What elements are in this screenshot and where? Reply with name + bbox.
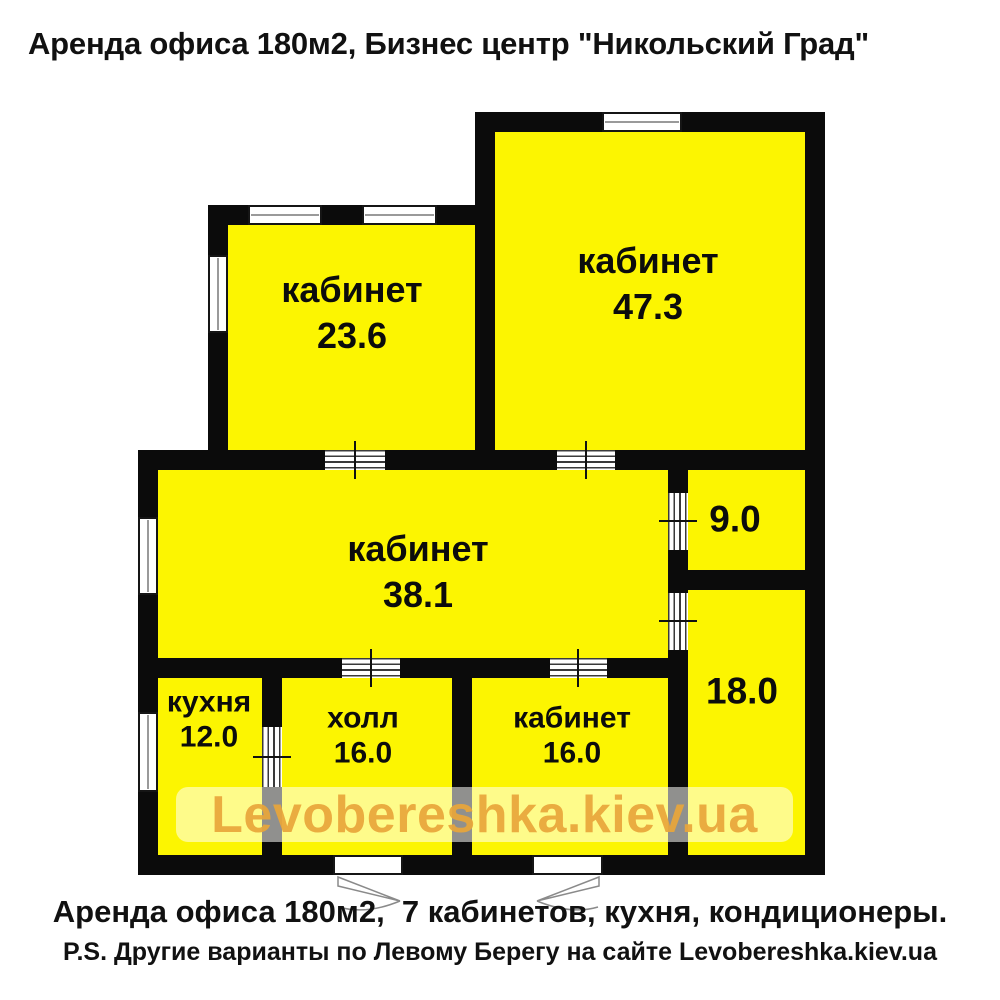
floor-plan-page: Аренда офиса 180м2, Бизнес центр "Николь… <box>0 0 1000 1000</box>
window-23-top-2 <box>362 205 437 225</box>
door-tick <box>370 649 372 687</box>
door-tick <box>253 756 291 758</box>
label-kabinet-47-3: кабинет 47.3 <box>577 238 718 330</box>
footer-line-2: P.S. Другие варианты по Левому Берегу на… <box>0 938 1000 967</box>
label-kuhnya-12-0: кухня 12.0 <box>167 686 251 755</box>
wall-right-exterior <box>805 112 825 875</box>
label-18-0: 18.0 <box>706 667 778 714</box>
window-38-left <box>138 517 158 595</box>
label-holl-16-0: холл 16.0 <box>327 702 399 771</box>
page-title: Аренда офиса 180м2, Бизнес центр "Николь… <box>28 26 972 62</box>
wall-9-18-divider <box>688 570 805 590</box>
entrance-door-holl <box>333 855 403 875</box>
wall-bottom-exterior <box>138 855 825 875</box>
watermark-text: Levobereshka.kiev.ua <box>211 785 758 845</box>
door-tick <box>585 441 587 479</box>
watermark-banner: Levobereshka.kiev.ua <box>176 787 793 842</box>
wall-left-47 <box>475 112 495 470</box>
label-kabinet-23-6: кабинет 23.6 <box>281 267 422 359</box>
label-kabinet-16-0: кабинет 16.0 <box>513 702 631 771</box>
window-47-top <box>602 112 682 132</box>
label-kabinet-38-1: кабинет 38.1 <box>347 526 488 618</box>
window-23-left <box>208 255 228 333</box>
label-9-0: 9.0 <box>709 495 760 542</box>
door-tick <box>577 649 579 687</box>
footer-line-1: Аренда офиса 180м2, 7 кабинетов, кухня, … <box>0 894 1000 930</box>
wall-left-23 <box>208 205 228 470</box>
door-tick <box>354 441 356 479</box>
door-tick <box>659 520 697 522</box>
window-23-top-1 <box>248 205 322 225</box>
entrance-door-kabinet16 <box>532 855 603 875</box>
window-kuhnya-left <box>138 712 158 792</box>
door-tick <box>659 620 697 622</box>
wall-shared-middle <box>138 450 825 470</box>
